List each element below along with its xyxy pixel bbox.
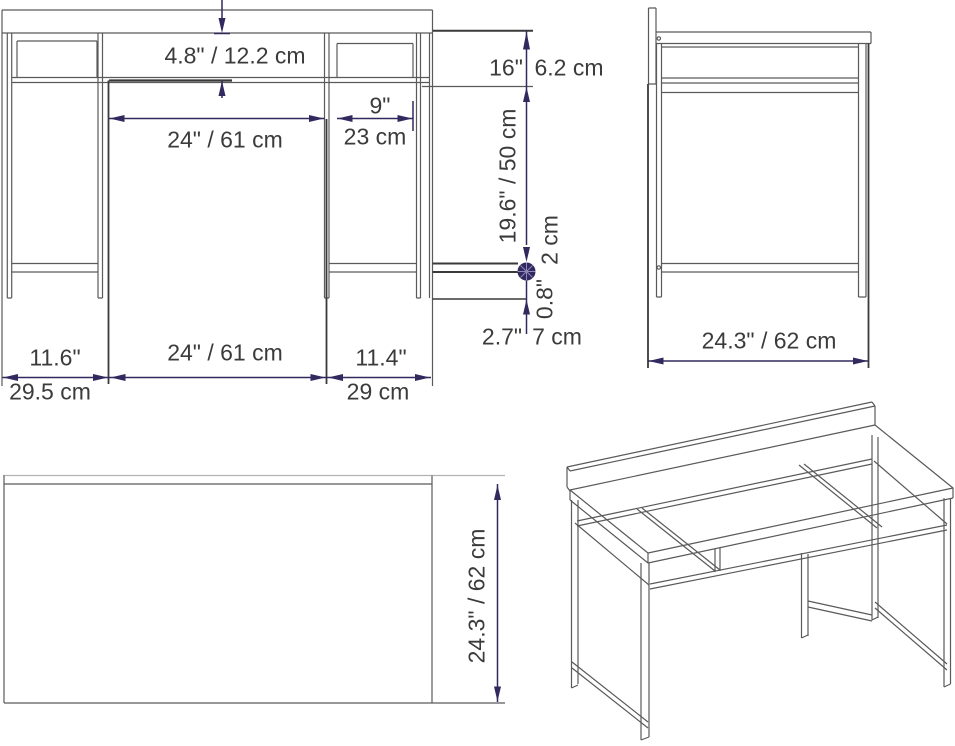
screw-hole-icon [657,266,660,269]
dim-label-leg-clearance: 19.6" / 50 cm [497,109,520,244]
front-view-reference-lines [109,31,534,384]
top-view-linework [3,476,505,704]
dim-label-left-section-cm: 29.5 cm [9,381,91,404]
dim-label-center-section: 24" / 61 cm [167,342,283,365]
perspective-view-linework [567,402,953,740]
dim-label-stretcher-cm: 2 cm [539,215,562,265]
dim-label-foot-cm: 7 cm [532,326,582,349]
dim-label-center-opening: 24" / 61 cm [167,129,283,152]
screw-hole-icon [657,37,660,40]
dim-label-right-section-cm: 29 cm [347,381,410,404]
dim-label-foot-in: 2.7" [482,326,522,349]
dim-label-shelf-height: 4.8" / 12.2 cm [164,45,305,68]
dim-label-right-section-in: 11.4" [355,347,406,370]
side-view-linework [649,8,872,297]
dim-label-left-section-in: 11.6" [29,347,80,370]
dim-label-right-opening-in: 9" [370,95,391,118]
dim-label-top-depth: 24.3" / 62 cm [466,529,489,664]
grommet-dot-icon [518,263,536,281]
dim-label-side-depth: 24.3" / 62 cm [702,330,837,353]
dimension-arrowheads [3,18,868,702]
dim-label-stretcher-in: 0.8" [534,279,557,319]
dim-label-top-shelf-in: 16" [489,57,523,80]
dim-label-right-opening-cm: 23 cm [344,126,407,149]
dim-label-top-shelf-cm: 6.2 cm [534,57,603,80]
desk-dimension-drawing: 4.8" / 12.2 cm 24" / 61 cm 9" 23 cm 16" … [0,0,955,746]
